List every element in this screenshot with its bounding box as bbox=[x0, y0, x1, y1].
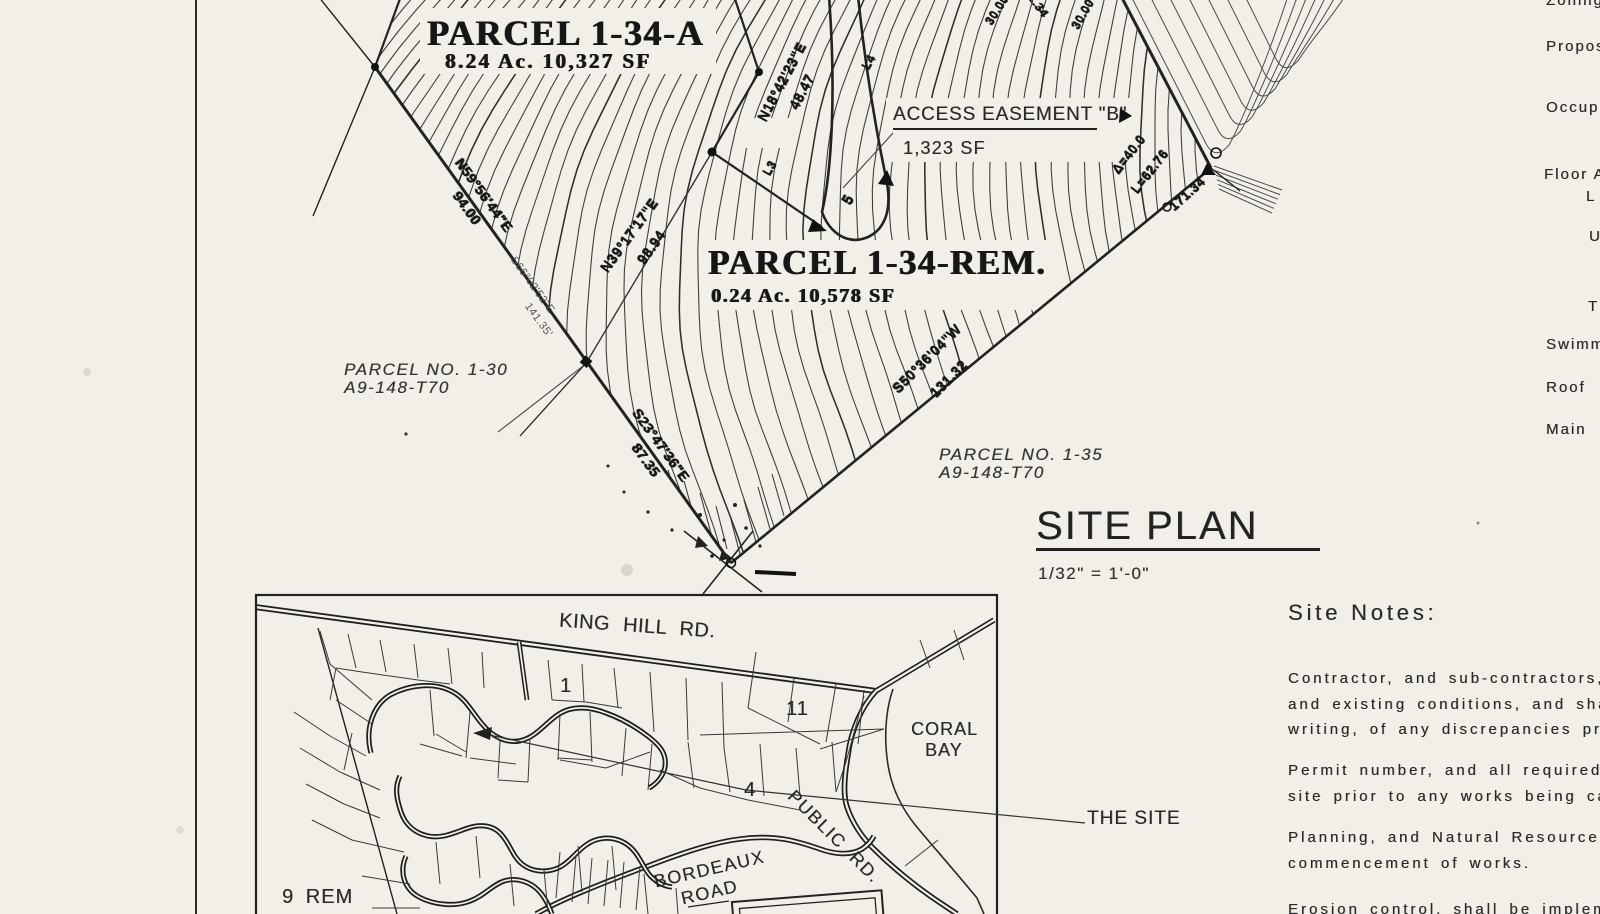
svg-text:30.00: 30.00 bbox=[1068, 0, 1096, 31]
svg-text:L4: L4 bbox=[858, 52, 878, 72]
svg-text:171.34: 171.34 bbox=[1165, 173, 1207, 213]
svg-text:L3: L3 bbox=[759, 158, 779, 178]
